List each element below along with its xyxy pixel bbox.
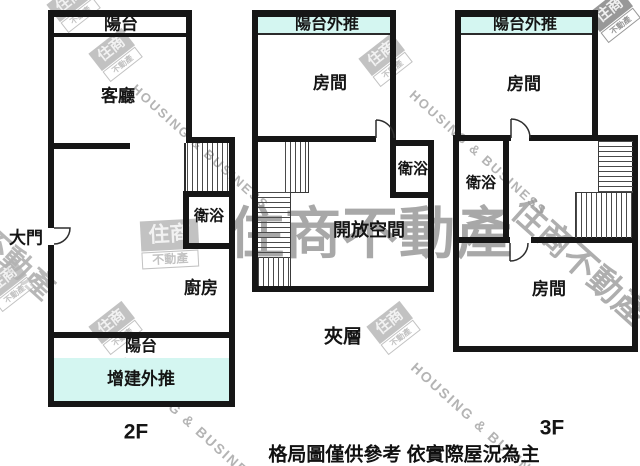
brand-stamp-icon: 住商 不動產	[366, 301, 421, 355]
wall	[48, 401, 235, 407]
room-label-room: 房間	[313, 75, 347, 92]
disclaimer-text: 格局圖僅供參考 依實際屋況為主	[268, 440, 539, 466]
staircase	[575, 192, 633, 238]
floor-label-mezzanine: 夾層	[324, 328, 362, 347]
staircase	[187, 143, 229, 191]
label-entrance: 大門	[9, 230, 43, 247]
brand-stamp-icon: 住商 不動產	[0, 258, 36, 312]
staircase	[598, 141, 633, 192]
door-swing-icon	[374, 118, 398, 142]
room-label-balcony-ext: 陽台外推	[295, 17, 359, 33]
stair-landing	[258, 142, 286, 193]
room-label-room-bottom: 房間	[532, 281, 566, 298]
wall	[453, 237, 510, 243]
wall	[503, 141, 509, 243]
room-label-bathroom: 衛浴	[466, 176, 496, 191]
wall	[183, 191, 235, 197]
wall	[48, 143, 130, 149]
wall	[54, 33, 186, 37]
wall	[428, 140, 434, 292]
door-swing-icon	[508, 241, 532, 265]
wall	[48, 245, 54, 407]
wall	[183, 191, 189, 249]
wall	[453, 346, 638, 352]
wall	[252, 286, 434, 292]
brand-stamp-icon: 住商 不動產	[358, 33, 413, 87]
room-label-room-top: 房間	[507, 76, 541, 93]
room-label-balcony-ext: 陽台外推	[493, 17, 557, 33]
stair-edge	[184, 143, 186, 191]
wall	[183, 243, 235, 249]
floorplan-image: HOUSING & BUSINESS HOUSING & BUSINESS HO…	[0, 0, 640, 466]
wall	[229, 137, 235, 407]
wall	[455, 10, 461, 140]
line	[258, 33, 390, 35]
wall	[390, 140, 396, 198]
staircase	[285, 142, 309, 193]
door-swing-icon	[509, 117, 533, 141]
wall	[186, 10, 192, 142]
room-label-kitchen: 廚房	[184, 280, 218, 297]
room-label-bathroom: 衛浴	[194, 209, 224, 224]
room-label-living-room: 客廳	[101, 88, 135, 105]
room-label-balcony-bottom: 陽台	[125, 339, 157, 355]
wall	[453, 135, 459, 352]
room-label-extension: 增建外推	[107, 371, 175, 388]
floor-label-3f: 3F	[540, 418, 565, 439]
wall	[592, 10, 598, 140]
staircase	[258, 257, 291, 286]
room-label-open-space: 開放空間	[333, 221, 405, 239]
room-label-bathroom: 衛浴	[398, 162, 428, 177]
door-swing-icon	[48, 226, 74, 248]
floor-label-2f: 2F	[124, 422, 149, 443]
staircase	[258, 192, 291, 258]
room-label-balcony-top: 陽台	[104, 16, 138, 33]
wall	[48, 10, 54, 228]
line	[461, 33, 592, 35]
